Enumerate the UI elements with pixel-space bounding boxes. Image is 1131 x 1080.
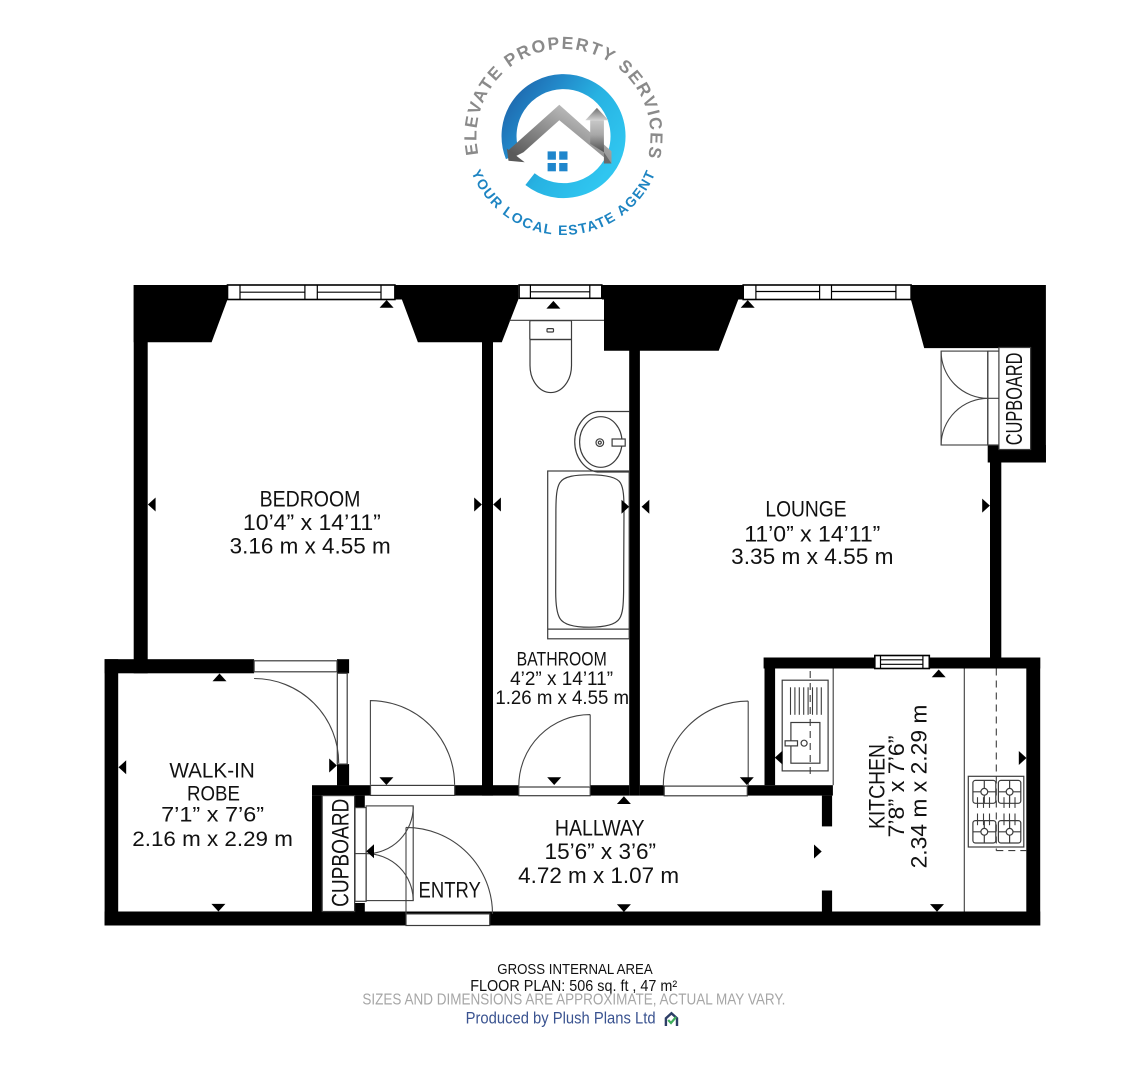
svg-text:3.35 m x 4.55 m: 3.35 m x 4.55 m bbox=[731, 544, 893, 569]
svg-text:7’8” x 7’6”: 7’8” x 7’6” bbox=[884, 735, 909, 837]
svg-text:CUPBOARD: CUPBOARD bbox=[328, 799, 355, 907]
svg-text:11’0” x 14’11”: 11’0” x 14’11” bbox=[744, 521, 880, 546]
svg-text:BATHROOM: BATHROOM bbox=[517, 650, 607, 671]
svg-text:BEDROOM: BEDROOM bbox=[260, 487, 361, 512]
svg-text:HALLWAY: HALLWAY bbox=[555, 816, 645, 841]
svg-text:YOUR LOCAL ESTATE AGENT: YOUR LOCAL ESTATE AGENT bbox=[468, 167, 658, 238]
svg-text:ROBE: ROBE bbox=[187, 782, 240, 805]
svg-text:3.16 m x 4.55 m: 3.16 m x 4.55 m bbox=[230, 533, 391, 558]
svg-text:Produced by Plush Plans Ltd: Produced by Plush Plans Ltd bbox=[466, 1009, 656, 1028]
svg-text:ELEVATE PROPERTY SERVICES: ELEVATE PROPERTY SERVICES bbox=[460, 33, 666, 162]
svg-text:WALK-IN: WALK-IN bbox=[169, 760, 254, 783]
svg-text:CUPBOARD: CUPBOARD bbox=[1001, 353, 1027, 446]
svg-text:2.34 m x 2.29 m: 2.34 m x 2.29 m bbox=[907, 705, 932, 869]
svg-text:GROSS INTERNAL AREA: GROSS INTERNAL AREA bbox=[497, 962, 653, 978]
svg-text:LOUNGE: LOUNGE bbox=[765, 497, 846, 522]
svg-text:SIZES AND DIMENSIONS ARE APPRO: SIZES AND DIMENSIONS ARE APPROXIMATE, AC… bbox=[362, 992, 785, 1009]
svg-text:2.16 m x 2.29 m: 2.16 m x 2.29 m bbox=[132, 828, 293, 851]
svg-text:1.26 m x 4.55 m: 1.26 m x 4.55 m bbox=[495, 688, 629, 709]
svg-text:15’6” x 3’6”: 15’6” x 3’6” bbox=[545, 839, 657, 864]
svg-text:10’4” x 14’11”: 10’4” x 14’11” bbox=[243, 510, 381, 535]
svg-text:4.72 m x 1.07 m: 4.72 m x 1.07 m bbox=[518, 863, 679, 888]
svg-text:7’1” x 7’6”: 7’1” x 7’6” bbox=[161, 804, 264, 827]
svg-text:4’2” x 14’11”: 4’2” x 14’11” bbox=[510, 669, 613, 690]
svg-text:ENTRY: ENTRY bbox=[419, 877, 482, 902]
